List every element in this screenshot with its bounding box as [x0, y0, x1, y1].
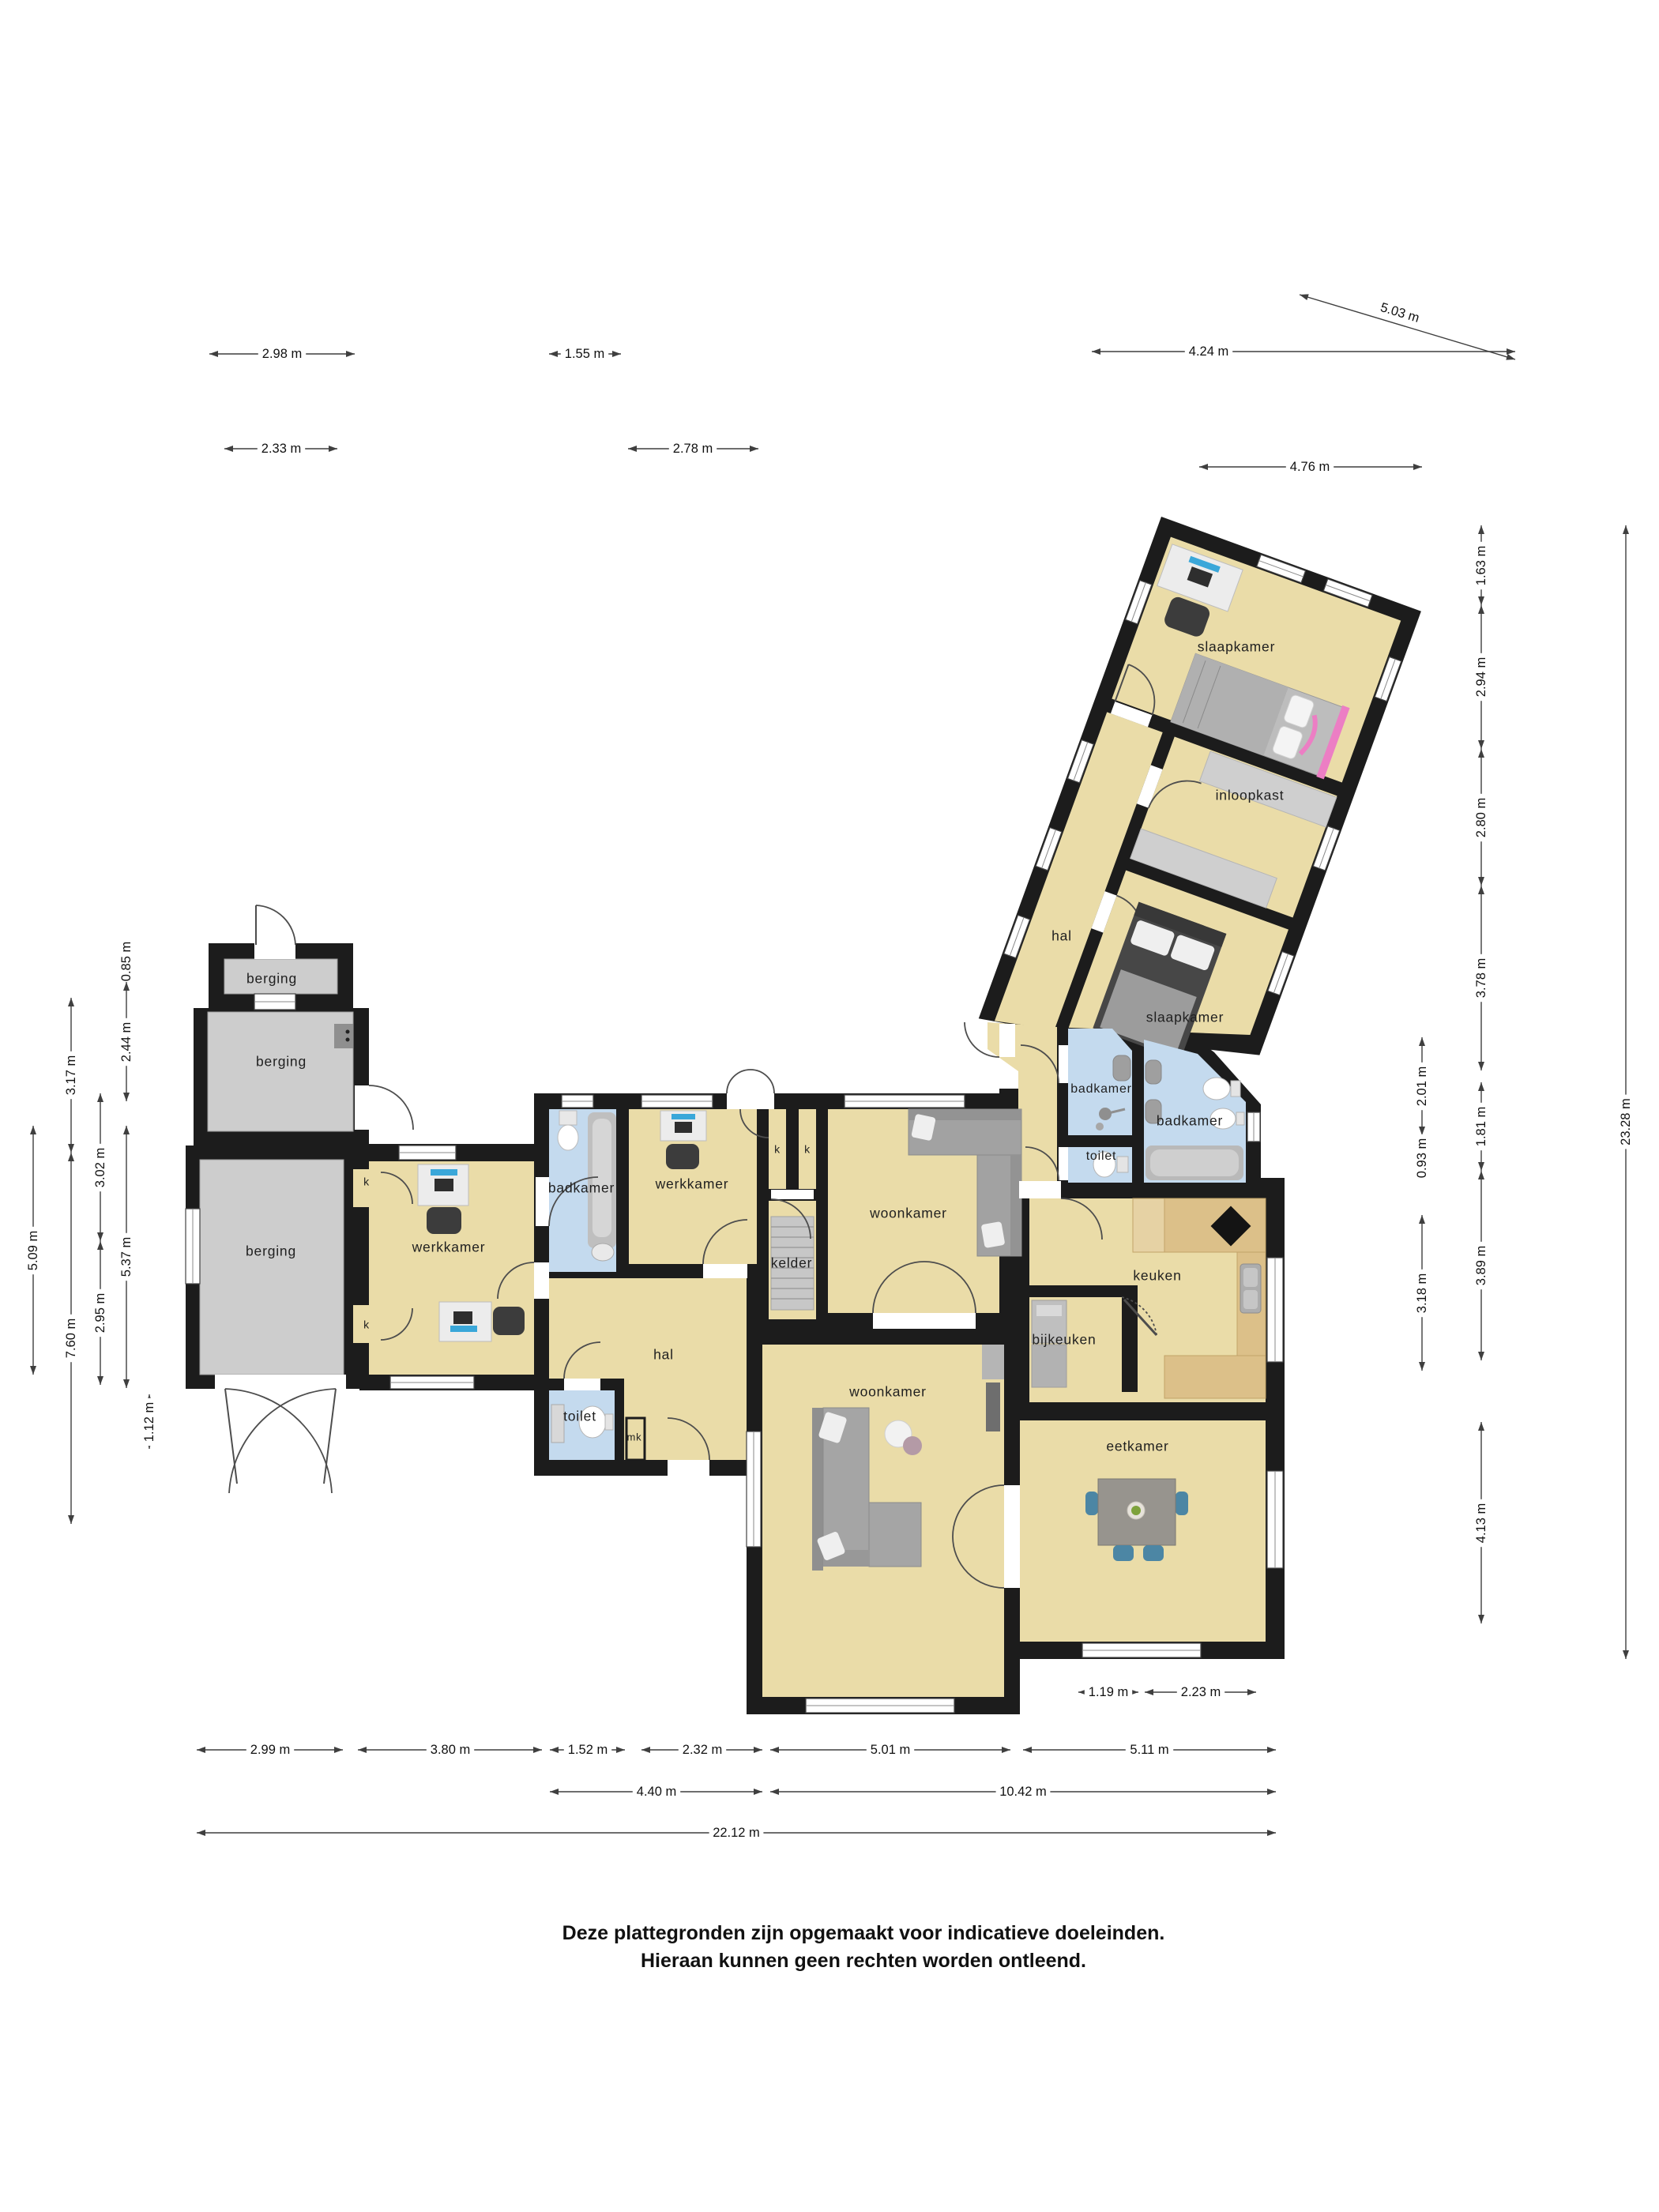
berging-3-double-door[interactable]: [215, 1375, 346, 1493]
werkkamer-1-door-gap[interactable]: [534, 1262, 549, 1299]
dimension: 4.40 m: [550, 1784, 762, 1800]
sink-badkamer-main: [592, 1243, 614, 1261]
room-label-k-1: k: [363, 1176, 370, 1188]
room-label-woonkamer-1: woonkamer: [869, 1206, 947, 1221]
badkamer-main-door-gap[interactable]: [536, 1177, 549, 1226]
dimension-label: 3.17 m: [64, 1055, 78, 1095]
dimension-label: 22.12 m: [713, 1826, 760, 1840]
dimension: 0.85 m: [118, 938, 134, 985]
dimension-label: 5.03 m: [1379, 300, 1420, 325]
dimension: 2.98 m: [209, 346, 355, 362]
room-hal-1a: [549, 1278, 747, 1379]
dimension: 2.99 m: [197, 1742, 343, 1758]
toilet-1-door-gap[interactable]: [564, 1379, 600, 1390]
dimension-label: 4.24 m: [1189, 344, 1228, 359]
dimension: 5.11 m: [1023, 1742, 1276, 1758]
dimension: 2.94 m: [1473, 605, 1489, 749]
room-label-hal-2: hal: [1051, 928, 1072, 944]
berging-1-door-gap[interactable]: [254, 943, 295, 959]
dimension: 3.89 m: [1473, 1171, 1489, 1360]
dimension-label: 2.01 m: [1415, 1066, 1429, 1106]
dimension: 5.09 m: [25, 1126, 41, 1375]
badkamer-wing-left-door-gap[interactable]: [1059, 1045, 1068, 1083]
kelder-door-gap[interactable]: [771, 1190, 814, 1199]
dimension-label: 5.09 m: [26, 1231, 40, 1270]
toilet-badkamer-main: [558, 1111, 578, 1150]
dimension-label: 5.11 m: [1130, 1743, 1168, 1757]
dimension: 1.63 m: [1473, 525, 1489, 605]
room-label-kelder: kelder: [771, 1255, 812, 1271]
dimension: 5.01 m: [770, 1742, 1010, 1758]
dimension: 5.03 m: [1300, 294, 1515, 359]
dimension: 3.80 m: [358, 1742, 542, 1758]
room-berging-2: [208, 1012, 353, 1131]
dimension: 0.93 m: [1414, 1134, 1430, 1182]
room-label-k-4: k: [804, 1143, 811, 1156]
dimension-label: 2.94 m: [1474, 657, 1488, 697]
dimension: 2.33 m: [224, 441, 337, 457]
room-label-berging-1: berging: [246, 971, 297, 987]
dimension-label: 0.85 m: [119, 942, 134, 981]
dimension-label: 3.18 m: [1415, 1273, 1429, 1313]
room-berging-3: [200, 1160, 344, 1375]
dimension: 1.81 m: [1473, 1082, 1489, 1171]
dimension-label: 7.60 m: [64, 1319, 78, 1358]
dimension-label: 4.40 m: [637, 1785, 676, 1799]
dimension: 4.13 m: [1473, 1422, 1489, 1623]
dimension-label: 0.93 m: [1415, 1138, 1429, 1178]
dimension-label: 2.32 m: [683, 1743, 722, 1757]
disclaimer-line-2: Hieraan kunnen geen rechten worden ontle…: [641, 1950, 1086, 1972]
dimension: 2.80 m: [1473, 749, 1489, 886]
werkkamer-2-door-gap[interactable]: [703, 1264, 747, 1278]
dimension-label: 1.12 m: [142, 1402, 156, 1442]
dimension-label: 2.78 m: [673, 442, 713, 456]
dimension-label: 2.44 m: [119, 1022, 134, 1062]
room-label-werkkamer-2: werkkamer: [655, 1176, 729, 1192]
dimension-label: 2.98 m: [262, 347, 302, 361]
dimension-label: 3.89 m: [1474, 1246, 1488, 1285]
room-label-slaapkamer-2: slaapkamer: [1146, 1010, 1224, 1025]
dimension: 23.28 m: [1618, 525, 1634, 1659]
dimension-label: 2.95 m: [93, 1293, 107, 1333]
dimension-label: 2.80 m: [1474, 798, 1488, 837]
meter-box: [334, 1024, 353, 1048]
dimension: 10.42 m: [770, 1784, 1276, 1800]
room-label-k-3: k: [774, 1143, 781, 1156]
berging-2-door-arc: [369, 1085, 413, 1130]
hal-exterior-door-gap[interactable]: [668, 1460, 709, 1476]
dimension: 2.95 m: [92, 1241, 108, 1385]
dimension: 1.52 m: [550, 1742, 625, 1758]
dimension: 3.17 m: [63, 998, 79, 1153]
room-label-toilet-1: toilet: [563, 1409, 596, 1424]
room-label-badkamer-main: badkamer: [548, 1180, 615, 1196]
dimension: 2.44 m: [118, 982, 134, 1101]
room-label-woonkamer-2: woonkamer: [848, 1384, 927, 1400]
dimension-label: 5.37 m: [119, 1237, 134, 1277]
dimension: 1.12 m: [141, 1394, 157, 1449]
dimension: 4.24 m: [1092, 344, 1515, 359]
entrance-door[interactable]: [727, 1070, 774, 1109]
room-label-slaapkamer-1: slaapkamer: [1198, 639, 1275, 655]
toilet-2-door-gap[interactable]: [1059, 1147, 1068, 1180]
room-label-berging-3: berging: [246, 1243, 296, 1259]
room-label-berging-2: berging: [256, 1054, 307, 1070]
dimension-label: 3.02 m: [93, 1148, 107, 1187]
coffee-table-mauve: [903, 1436, 922, 1455]
room-label-eetkamer: eetkamer: [1106, 1439, 1168, 1454]
dimension: 2.78 m: [628, 441, 758, 457]
dimension-label: 3.80 m: [431, 1743, 470, 1757]
dimension-label: 1.19 m: [1089, 1685, 1128, 1699]
dimension: 3.18 m: [1414, 1215, 1430, 1371]
dimension: 2.23 m: [1145, 1684, 1256, 1700]
dimension: 4.76 m: [1199, 459, 1422, 475]
dimension-label: 10.42 m: [999, 1785, 1047, 1799]
dimension: 2.32 m: [641, 1742, 762, 1758]
dimension-label: 4.13 m: [1474, 1503, 1488, 1543]
dimension: 3.02 m: [92, 1093, 108, 1241]
woonkamer-1-hal-door-gap[interactable]: [999, 1024, 1015, 1057]
dimension-label: 2.33 m: [261, 442, 301, 456]
dimension: 1.55 m: [549, 346, 621, 362]
room-label-werkkamer-1: werkkamer: [412, 1240, 486, 1255]
dimension-label: 4.76 m: [1290, 460, 1330, 474]
floorplan-canvas: bergingbergingbergingwerkkamerbadkamerwe…: [0, 0, 1659, 2212]
dimension: 7.60 m: [63, 1153, 79, 1524]
dimension-label: 1.63 m: [1474, 546, 1488, 585]
dimension-label: 1.81 m: [1474, 1107, 1488, 1146]
room-label-mk: mk: [627, 1431, 642, 1443]
berging-1-door-arc: [256, 905, 295, 945]
room-label-hal-1: hal: [653, 1347, 674, 1363]
room-label-keuken: keuken: [1133, 1268, 1181, 1284]
disclaimer-line-1: Deze plattegronden zijn opgemaakt voor i…: [562, 1922, 1165, 1944]
dimension-label: 1.55 m: [565, 347, 604, 361]
dimension-label: 5.01 m: [871, 1743, 910, 1757]
dimension-label: 1.52 m: [568, 1743, 608, 1757]
room-label-k-2: k: [363, 1319, 370, 1331]
keuken-door-gap[interactable]: [1019, 1181, 1061, 1198]
room-label-badkamer-wing-right: badkamer: [1157, 1113, 1223, 1129]
dimension: 1.19 m: [1078, 1684, 1138, 1700]
dimension: 22.12 m: [197, 1825, 1276, 1841]
dimension-label: 2.23 m: [1181, 1685, 1221, 1699]
room-label-inloopkast: inloopkast: [1216, 788, 1285, 803]
dimension: 2.01 m: [1414, 1037, 1430, 1135]
dimension-label: 2.99 m: [250, 1743, 290, 1757]
berging-2-door-gap[interactable]: [355, 1085, 369, 1130]
dimension-label: 23.28 m: [1619, 1098, 1633, 1145]
room-label-toilet-2: toilet: [1086, 1149, 1117, 1163]
dimension: 5.37 m: [118, 1126, 134, 1388]
dimension: 3.78 m: [1473, 886, 1489, 1070]
dimension-label: 3.78 m: [1474, 958, 1488, 998]
room-label-bijkeuken: bijkeuken: [1032, 1332, 1096, 1348]
room-label-badkamer-wing-left: badkamer: [1070, 1082, 1132, 1096]
